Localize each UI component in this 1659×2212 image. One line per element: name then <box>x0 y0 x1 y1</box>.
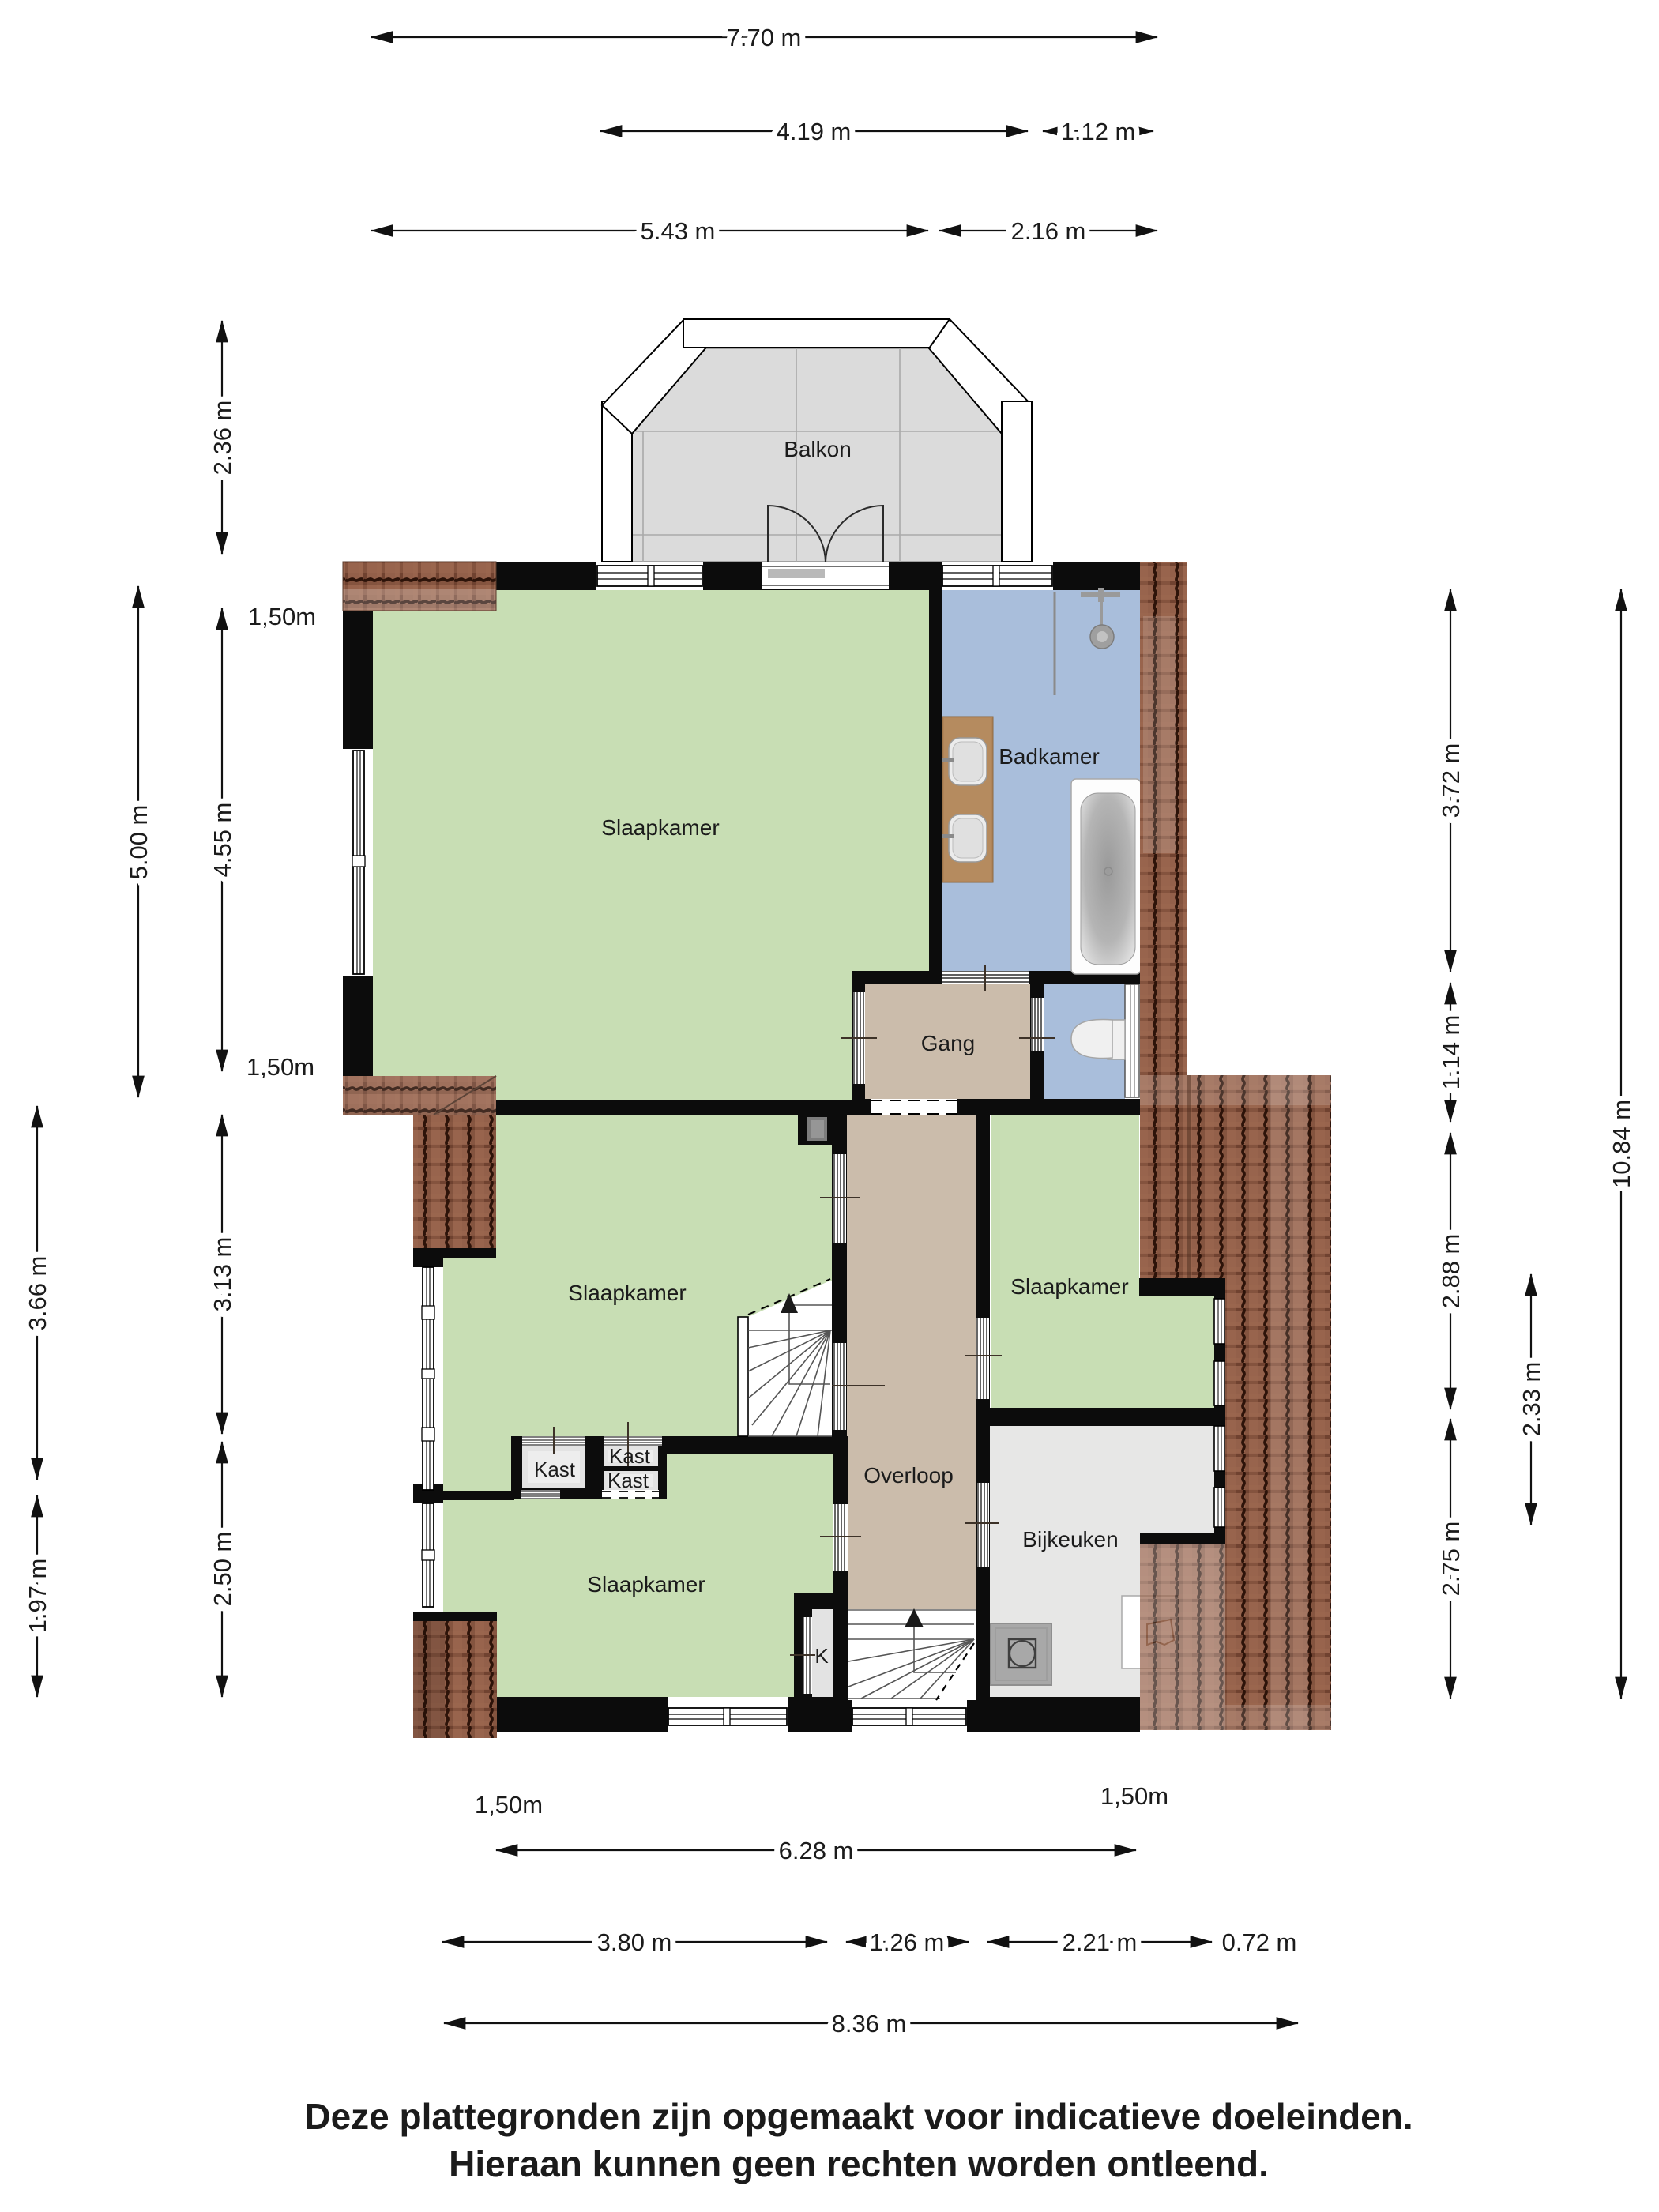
svg-text:1.14 m: 1.14 m <box>1437 1015 1465 1090</box>
svg-text:Slaapkamer: Slaapkamer <box>601 815 719 840</box>
svg-text:Badkamer: Badkamer <box>999 744 1100 769</box>
svg-text:Balkon: Balkon <box>784 437 852 461</box>
svg-text:Kast: Kast <box>609 1444 651 1468</box>
svg-text:1.12 m: 1.12 m <box>1061 118 1136 145</box>
svg-text:K: K <box>814 1644 829 1668</box>
svg-text:2.75 m: 2.75 m <box>1437 1522 1465 1597</box>
svg-text:2.88 m: 2.88 m <box>1437 1234 1465 1309</box>
svg-text:3.72 m: 3.72 m <box>1437 743 1465 818</box>
svg-text:Kast: Kast <box>534 1458 576 1481</box>
svg-text:7.70 m: 7.70 m <box>727 24 802 51</box>
svg-text:2.50 m: 2.50 m <box>209 1532 236 1607</box>
svg-text:5.43 m: 5.43 m <box>641 217 716 245</box>
svg-text:2.36 m: 2.36 m <box>209 401 236 476</box>
svg-text:2.16 m: 2.16 m <box>1011 217 1086 245</box>
svg-text:0.72 m: 0.72 m <box>1222 1928 1297 1956</box>
svg-text:3.66 m: 3.66 m <box>24 1256 51 1331</box>
svg-text:8.36 m: 8.36 m <box>832 2010 907 2037</box>
svg-text:Gang: Gang <box>921 1031 976 1055</box>
svg-text:4.55 m: 4.55 m <box>209 803 236 878</box>
svg-text:Slaapkamer: Slaapkamer <box>1010 1274 1128 1299</box>
svg-text:3.80 m: 3.80 m <box>597 1928 672 1956</box>
svg-text:1,50m: 1,50m <box>248 603 316 630</box>
svg-text:10.84 m: 10.84 m <box>1608 1100 1635 1188</box>
svg-text:3.13 m: 3.13 m <box>209 1237 236 1312</box>
svg-text:4.19 m: 4.19 m <box>777 118 852 145</box>
svg-text:Deze plattegronden zijn opgema: Deze plattegronden zijn opgemaakt voor i… <box>304 2096 1413 2137</box>
svg-text:2.33 m: 2.33 m <box>1518 1362 1545 1437</box>
svg-text:1,50m: 1,50m <box>1100 1782 1168 1810</box>
svg-text:1,50m: 1,50m <box>475 1791 543 1819</box>
svg-text:1.97 m: 1.97 m <box>24 1559 51 1634</box>
svg-text:Slaapkamer: Slaapkamer <box>587 1572 705 1597</box>
svg-text:6.28 m: 6.28 m <box>779 1837 854 1864</box>
svg-text:Bijkeuken: Bijkeuken <box>1022 1527 1118 1552</box>
svg-text:1.26 m: 1.26 m <box>870 1928 945 1956</box>
svg-text:1,50m: 1,50m <box>246 1053 314 1081</box>
svg-text:5.00 m: 5.00 m <box>125 805 152 880</box>
svg-text:2.21 m: 2.21 m <box>1063 1928 1138 1956</box>
svg-text:Kast: Kast <box>608 1469 649 1492</box>
svg-text:Hieraan kunnen geen rechten wo: Hieraan kunnen geen rechten worden ontle… <box>449 2143 1269 2184</box>
svg-text:Slaapkamer: Slaapkamer <box>568 1281 686 1305</box>
svg-text:Overloop: Overloop <box>863 1463 954 1488</box>
